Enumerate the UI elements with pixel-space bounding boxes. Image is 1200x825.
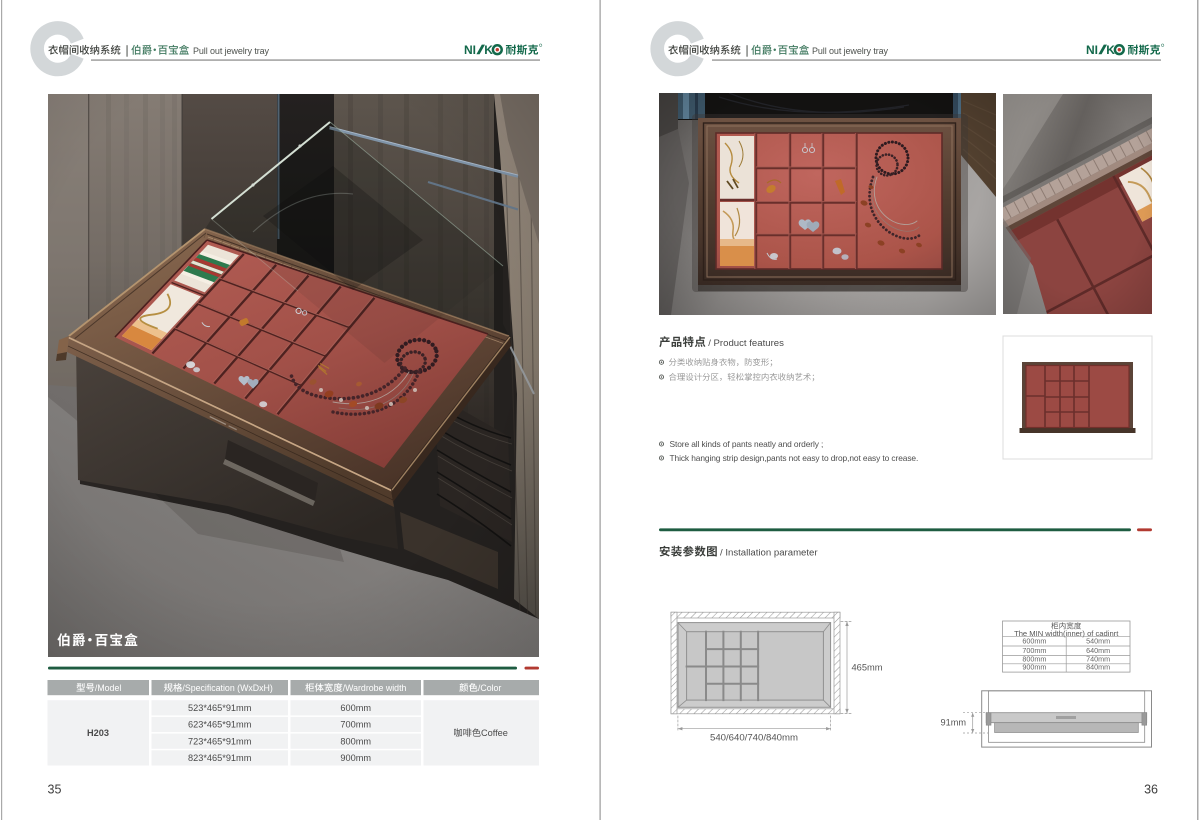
svg-text:91mm: 91mm (940, 718, 966, 728)
svg-text:/ Installation parameter: / Installation parameter (720, 548, 818, 559)
svg-text:540mm: 540mm (1086, 637, 1110, 646)
svg-text:723*465*91mm: 723*465*91mm (188, 736, 252, 746)
svg-text:600mm: 600mm (340, 703, 371, 713)
svg-text:523*465*91mm: 523*465*91mm (188, 703, 252, 713)
svg-text:823*465*91mm: 823*465*91mm (188, 753, 252, 763)
svg-text:900mm: 900mm (340, 753, 371, 763)
svg-text:H203: H203 (87, 728, 109, 738)
svg-text:900mm: 900mm (1022, 663, 1046, 672)
svg-text:NI: NI (464, 43, 476, 57)
svg-text:600mm: 600mm (1022, 637, 1046, 646)
svg-text:Thick hanging strip design,pan: Thick hanging strip design,pants not eas… (670, 453, 919, 463)
svg-text:Store all kinds of pants neatl: Store all kinds of pants neatly and orde… (670, 439, 824, 449)
svg-text:Pull out jewelry tray: Pull out jewelry tray (812, 46, 889, 56)
svg-text:800mm: 800mm (340, 736, 371, 746)
svg-text:/Color: /Color (478, 683, 502, 693)
svg-text:/Model: /Model (95, 683, 121, 693)
svg-text:623*465*91mm: 623*465*91mm (188, 720, 252, 730)
svg-text:/Specification (WxDxH): /Specification (WxDxH) (182, 683, 273, 693)
svg-text:35: 35 (48, 783, 62, 797)
svg-text:700mm: 700mm (340, 720, 371, 730)
svg-text:540/640/740/840mm: 540/640/740/840mm (710, 733, 798, 744)
svg-text:840mm: 840mm (1086, 663, 1110, 672)
svg-text:NI: NI (1086, 43, 1098, 57)
svg-text:36: 36 (1144, 783, 1158, 797)
svg-text:465mm: 465mm (852, 663, 883, 673)
svg-text:/ Product features: / Product features (708, 338, 784, 349)
svg-text:Coffee: Coffee (481, 728, 508, 738)
svg-text:Pull out jewelry tray: Pull out jewelry tray (193, 46, 270, 56)
svg-text:/Wardrobe width: /Wardrobe width (343, 683, 407, 693)
